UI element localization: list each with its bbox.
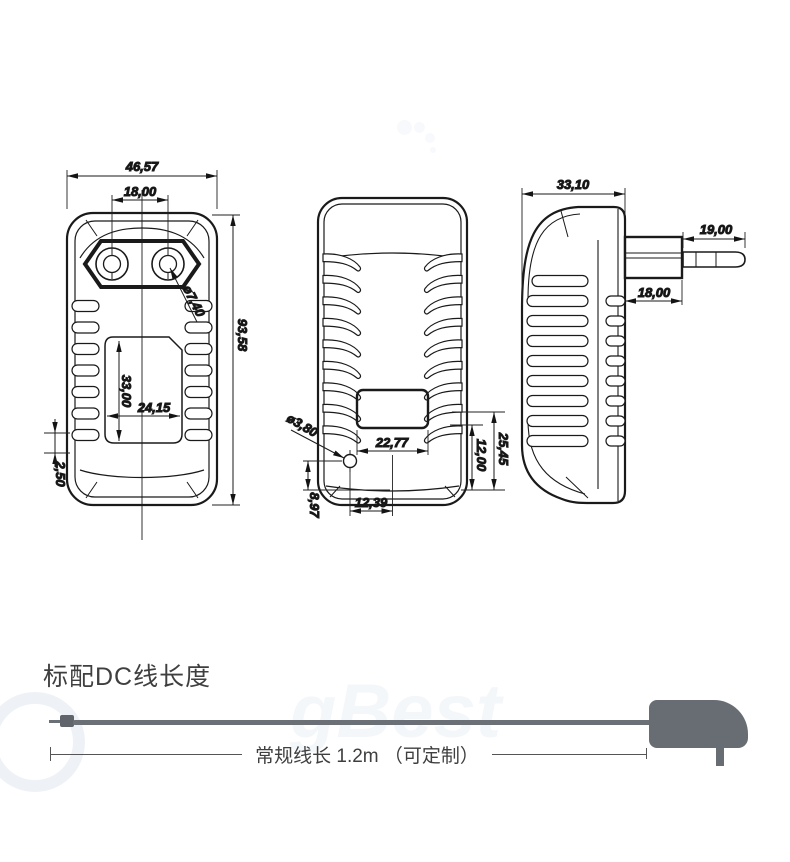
dim-back-recess-width: 22,77 [375, 435, 409, 450]
dim-back-recess-to-bottom: 25,45 [496, 432, 511, 466]
dim-front-vent-pitch: 2,50 [53, 460, 68, 487]
dim-back-hole-offset-y: 8,97 [307, 492, 322, 518]
dc-cable [73, 720, 651, 725]
front-view: 46,57 18,00 ø7,40 93,58 33,00 24,15 2,50 [44, 159, 250, 540]
dim-back-hole-offset-x: 12,39 [355, 495, 388, 510]
dim-back-recess-height: 12,00 [474, 439, 489, 472]
back-label-recess [357, 390, 428, 428]
plug-pin [683, 252, 745, 267]
dc-plug-body [60, 715, 74, 727]
cable-dim-line-left [50, 754, 242, 755]
dim-front-recess-height: 33,00 [119, 375, 134, 408]
dim-front-overall-width: 46,57 [125, 159, 159, 174]
dim-side-plug-base-width: 18,00 [638, 285, 671, 300]
technical-drawing: 46,57 18,00 ø7,40 93,58 33,00 24,15 2,50 [0, 0, 790, 640]
page: 46,57 18,00 ø7,40 93,58 33,00 24,15 2,50 [0, 0, 790, 862]
watermark-ring [0, 692, 85, 792]
screw-hole [344, 455, 357, 468]
cable-length-label: 常规线长 1.2m （可定制） [243, 741, 491, 768]
dim-front-overall-height: 93,58 [235, 319, 250, 352]
cable-section-title: 标配DC线长度 [43, 657, 211, 693]
adapter-silhouette [649, 700, 748, 748]
back-view: ø3,80 22,77 12,39 8,97 12,00 25,45 [284, 198, 511, 518]
back-vent-slots-left [323, 254, 360, 443]
cable-dim-line-right [492, 754, 647, 755]
back-vent-slots-right [425, 254, 462, 443]
side-vent-bars [527, 276, 625, 447]
dim-side-overall-depth: 33,10 [557, 177, 590, 192]
front-label-recess [105, 337, 182, 443]
dim-front-recess-width: 24,15 [137, 400, 171, 415]
side-view: 33,10 19,00 18,00 [522, 177, 745, 503]
adapter-silhouette-pin [716, 747, 724, 766]
dim-front-pin-spacing: 18,00 [124, 184, 157, 199]
dim-side-pin-length: 19,00 [700, 222, 733, 237]
